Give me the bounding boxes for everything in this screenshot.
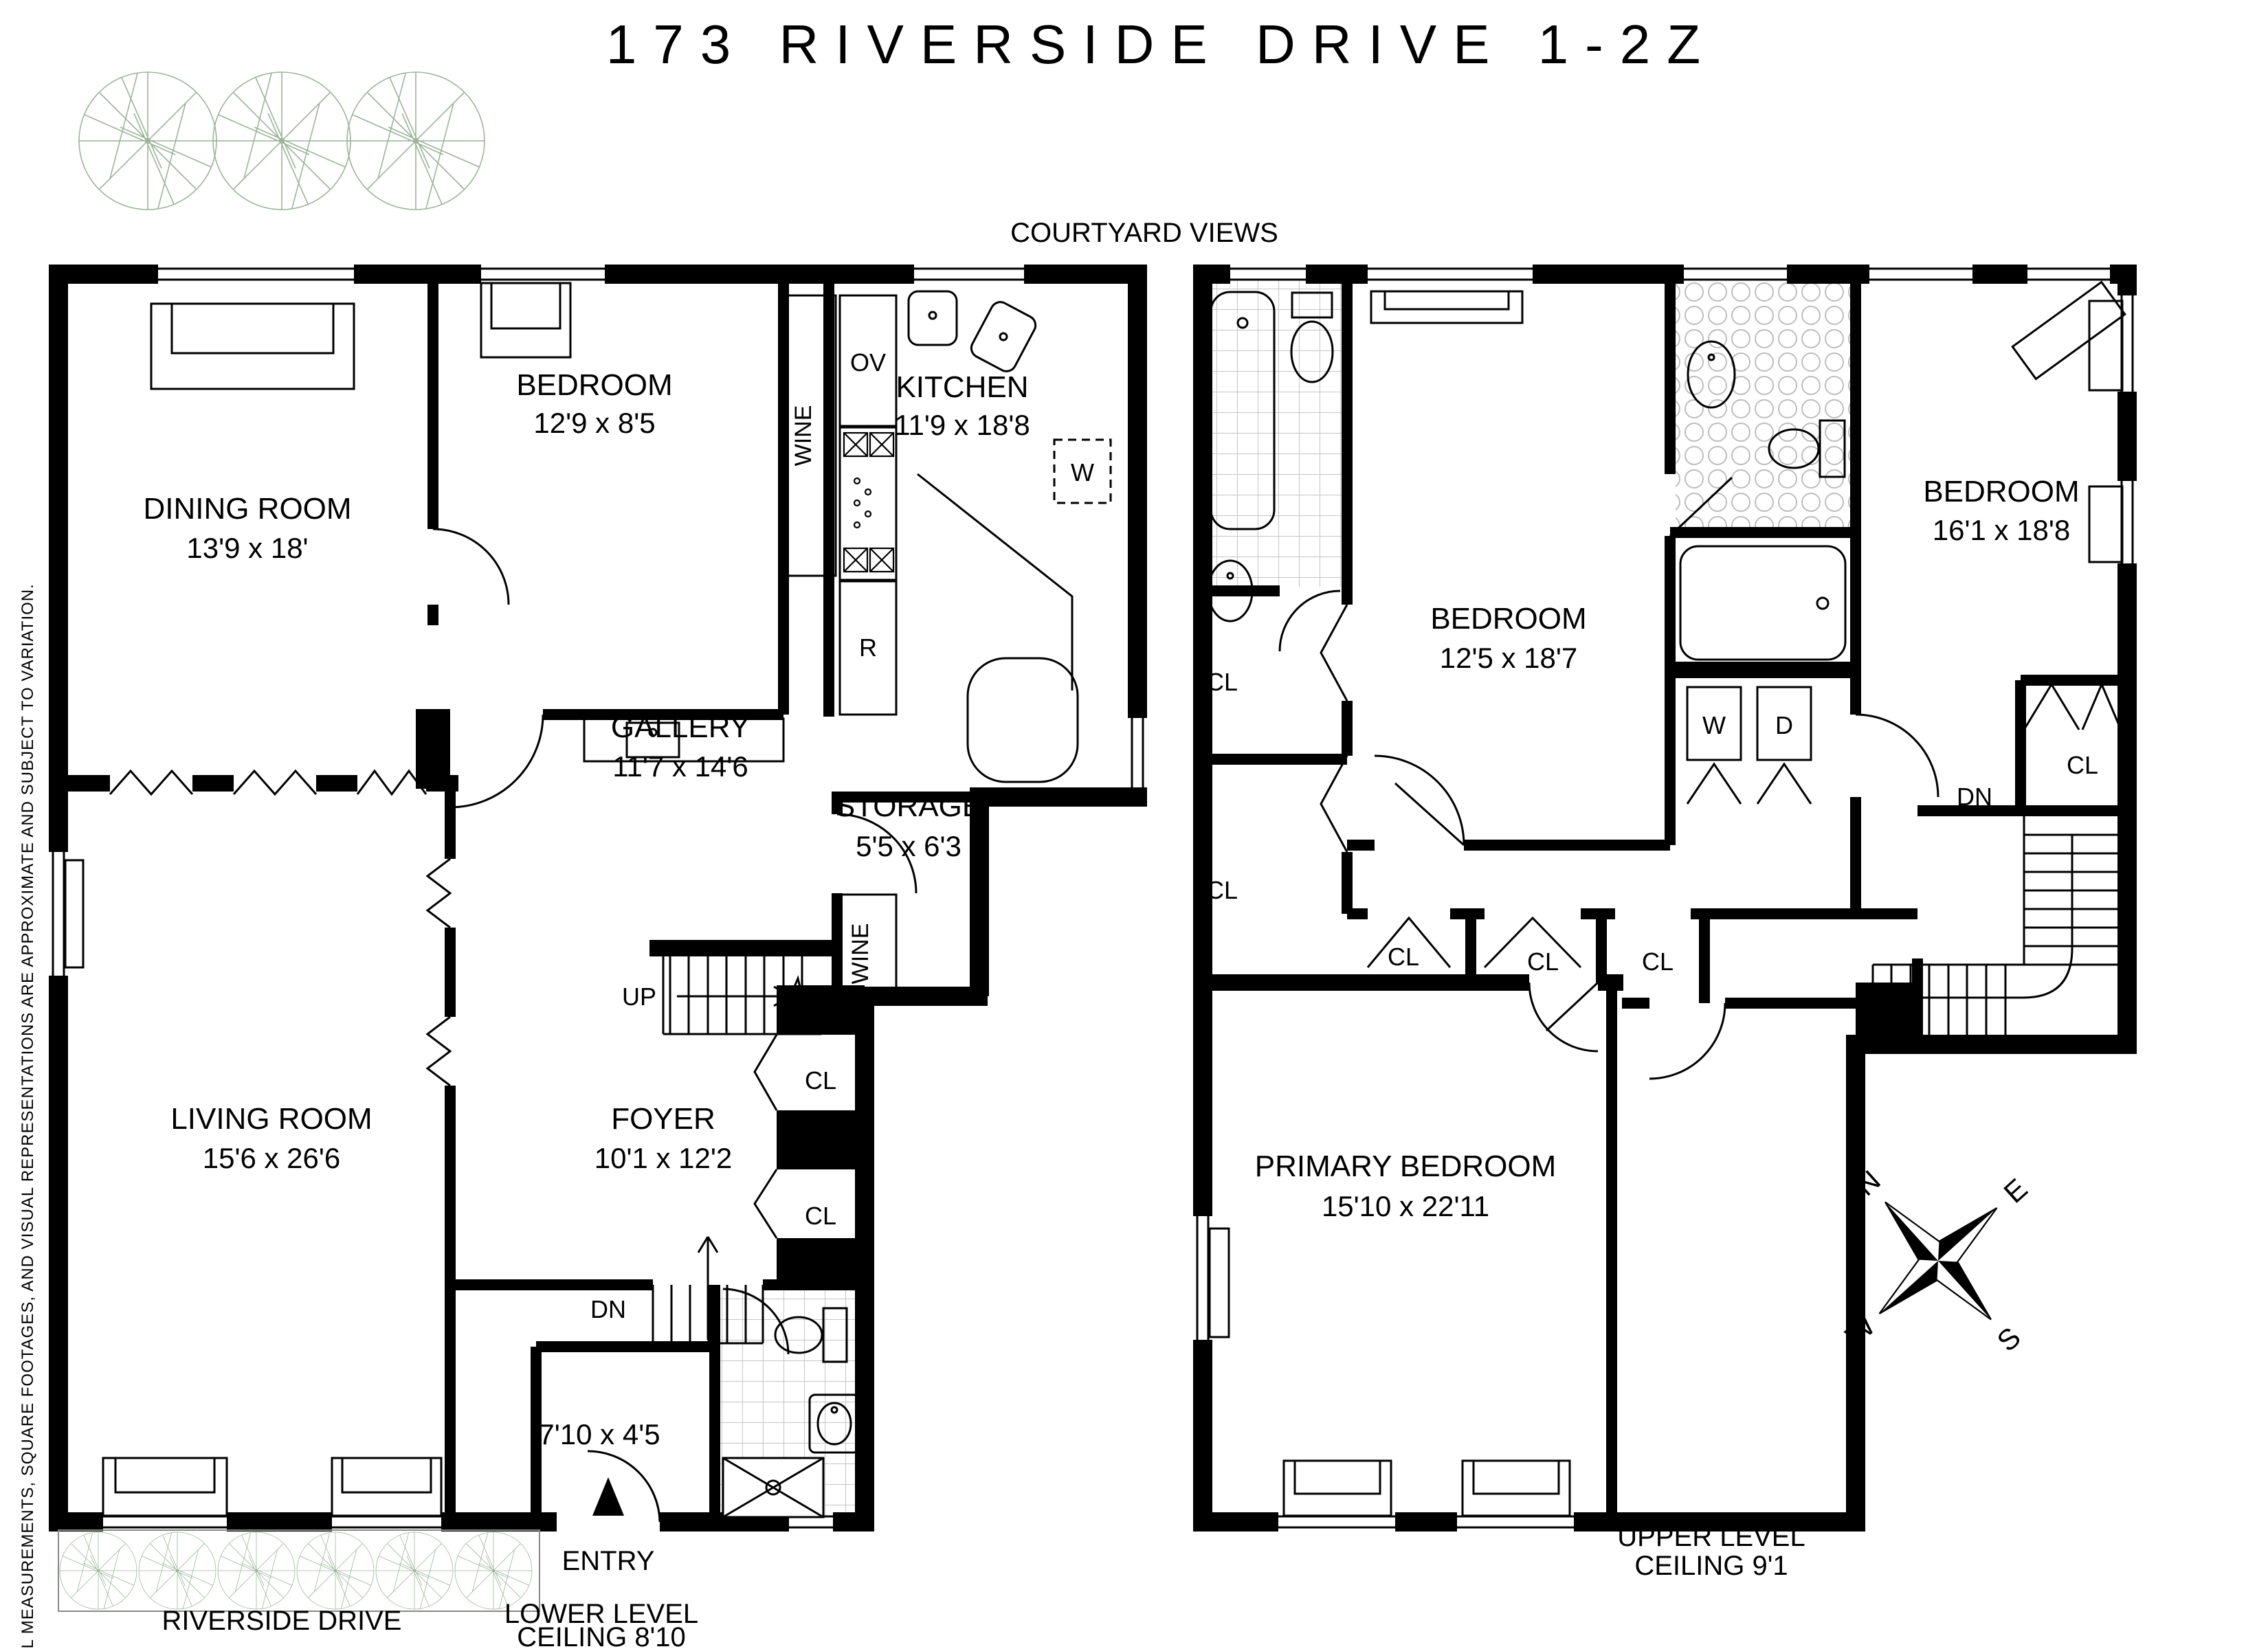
closet-label: CL	[1642, 947, 1674, 976]
washer-label: W	[1702, 711, 1726, 739]
closet-label: CL	[805, 1202, 836, 1230]
compass-south: S	[1991, 1321, 2027, 1358]
washer-label: W	[1071, 458, 1094, 486]
entry-label: ENTRY	[562, 1546, 655, 1576]
room-dims-storage: 5'5 x 6'3	[856, 830, 961, 862]
dryer-label: D	[1775, 711, 1793, 739]
closet-label: CL	[805, 1066, 836, 1095]
tree-row-top	[79, 72, 485, 210]
tree-row-bottom	[60, 1532, 532, 1609]
room-label-primary-bedroom: PRIMARY BEDROOM	[1255, 1149, 1556, 1183]
vestibule-dims: 7'10 x 4'5	[538, 1418, 660, 1450]
stairs-down	[1873, 816, 2122, 1042]
room-dims-gallery: 11'7 x 14'6	[612, 750, 748, 783]
wall-pier	[777, 985, 865, 1035]
room-label-dining: DINING ROOM	[143, 492, 351, 526]
room-label-storage: STORAGE	[835, 789, 982, 823]
floorplan-canvas: 173 RIVERSIDE DRIVE 1-2Z COURTYARD VIEWS…	[0, 0, 2268, 1649]
stairs-down-label: DN	[1957, 783, 1992, 811]
upper-level-ceiling: CEILING 9'1	[1634, 1551, 1788, 1581]
kitchen-fixtures	[584, 291, 1111, 782]
room-label-foyer: FOYER	[611, 1102, 715, 1136]
compass-west: W	[1839, 1309, 1881, 1351]
page-title: 173 RIVERSIDE DRIVE 1-2Z	[606, 14, 1717, 75]
wall-pier	[1856, 983, 1917, 1046]
room-label-gallery: GALLERY	[611, 710, 750, 744]
room-dims-bedroom-east: 16'1 x 18'8	[1933, 514, 2071, 546]
refrigerator-label: R	[859, 633, 877, 662]
entry-arrow-icon	[592, 1477, 624, 1516]
closet-label: CL	[1388, 943, 1419, 971]
room-dims-bedroom-west: 12'5 x 18'7	[1440, 642, 1578, 674]
riverside-drive-label: RIVERSIDE DRIVE	[162, 1606, 402, 1636]
room-dims-bedroom: 12'9 x 8'5	[533, 407, 655, 439]
room-dims-foyer: 10'1 x 12'2	[594, 1142, 733, 1174]
disclaimer-text: ALL MEASUREMENTS, SQUARE FOOTAGES, AND V…	[19, 583, 37, 1649]
upper-level-plan: BEDROOM 12'5 x 18'7 BEDROOM 16'1 x 18'8 …	[1197, 265, 2137, 1532]
wall-pier	[416, 709, 450, 789]
banquette	[968, 658, 1078, 782]
room-label-bedroom: BEDROOM	[516, 368, 672, 402]
stairs-down	[653, 1237, 763, 1343]
stairs-up-label: UP	[622, 983, 656, 1011]
courtyard-views-label: COURTYARD VIEWS	[1010, 218, 1278, 248]
oven-label: OV	[850, 348, 886, 377]
stairs-down-label: DN	[590, 1295, 626, 1323]
bathtub-icon	[1680, 546, 1845, 660]
closet-label: CL	[2067, 751, 2098, 779]
upper-level-label: UPPER LEVEL	[1617, 1522, 1805, 1552]
wine-label-lower: WINE	[847, 923, 874, 985]
room-label-kitchen: KITCHEN	[896, 370, 1028, 404]
closet-label: CL	[1527, 947, 1559, 976]
closet-label: CL	[1206, 876, 1238, 904]
floorplan-page: 173 RIVERSIDE DRIVE 1-2Z COURTYARD VIEWS…	[0, 0, 2268, 1649]
room-dims-dining: 13'9 x 18'	[186, 532, 308, 564]
room-label-bedroom-west: BEDROOM	[1430, 602, 1586, 636]
counter-edge	[918, 474, 1072, 691]
room-label-bedroom-east: BEDROOM	[1923, 475, 2079, 508]
room-dims-living: 15'6 x 26'6	[203, 1142, 341, 1174]
compass-rose: N E S W	[1770, 1095, 2104, 1430]
compass-east: E	[1997, 1172, 2033, 1209]
kitchen-sink-icon	[968, 299, 1038, 375]
wall-pier	[777, 1238, 865, 1286]
closet-label: CL	[1206, 668, 1238, 696]
lower-level-plan: DINING ROOM 13'9 x 18' BEDROOM 12'9 x 8'…	[53, 265, 1147, 1532]
interior-wall	[433, 274, 979, 1522]
lower-level-ceiling: CEILING 8'10	[517, 1622, 686, 1649]
wine-label-upper: WINE	[790, 405, 816, 467]
wall-pier	[777, 1110, 865, 1169]
room-dims-kitchen: 11'9 x 18'8	[894, 409, 1030, 441]
room-label-living: LIVING ROOM	[170, 1102, 372, 1136]
room-dims-primary-bedroom: 15'10 x 22'11	[1322, 1190, 1489, 1222]
